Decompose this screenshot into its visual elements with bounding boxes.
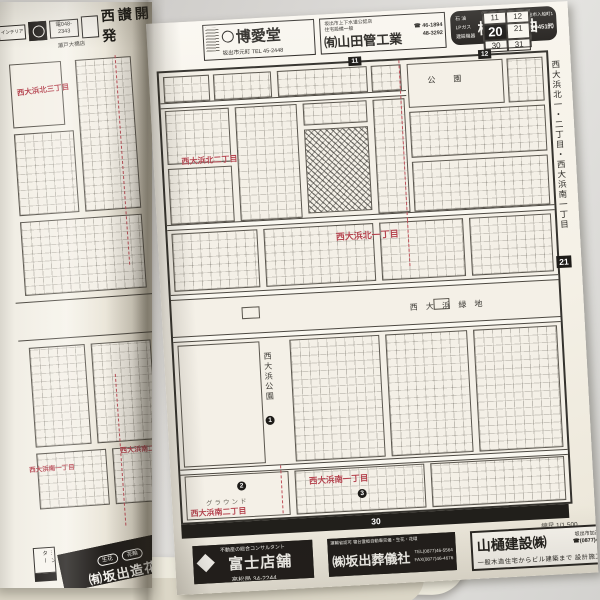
ad-partial-text: …ンター bbox=[40, 550, 57, 573]
ad-fuji-tenpo: 不動産の総合コンサルタント 富士店舗 高松局 34-2244 bbox=[192, 540, 314, 584]
map-block bbox=[14, 130, 80, 216]
map-block bbox=[91, 339, 152, 443]
top-edge-marker-12: 12 bbox=[478, 49, 491, 59]
map-block bbox=[163, 75, 210, 103]
ad-partial-phone-strip bbox=[35, 573, 58, 583]
bottom-edge-marker-30: 30 bbox=[371, 516, 381, 526]
right-edge-marker-21: 21 bbox=[556, 255, 572, 268]
ad-vertical-text-box bbox=[81, 15, 100, 38]
map-block bbox=[409, 105, 547, 158]
map-block bbox=[385, 330, 473, 456]
hakuaido-phone: 坂出市元町 TEL 45-2448 bbox=[222, 46, 283, 57]
grid-cell-31: 31 bbox=[507, 38, 531, 51]
left-page: インテリア 電048-2343 西讃開発 瀬戸大橋店 西大浜北三 bbox=[0, 2, 152, 588]
sougisha-topline: 運輸省認可 寝台霊柩自動車完備・生花・花環 bbox=[330, 534, 452, 547]
brush-logo-icon bbox=[32, 25, 45, 38]
district-label-minami-2: 西大浜南二丁目 bbox=[120, 442, 152, 455]
ad-logo-box bbox=[28, 20, 48, 40]
yamahi-addr: 坂出市加茂町47番 bbox=[574, 528, 598, 537]
map-block bbox=[241, 306, 260, 319]
map-block bbox=[36, 449, 110, 510]
circled-number-1: 1 bbox=[265, 416, 274, 425]
map-block bbox=[371, 64, 402, 92]
photo-of-open-map-book: インテリア 電048-2343 西讃開発 瀬戸大橋店 西大浜北三 bbox=[0, 0, 600, 600]
grid-cell-21: 21 bbox=[507, 22, 531, 39]
map-block bbox=[171, 229, 260, 292]
yokoi-left2: LPガス bbox=[455, 23, 471, 31]
hakuaido-logo-icon bbox=[221, 30, 234, 43]
sougisha-fax: FAX(0877)46-4676 bbox=[414, 555, 453, 562]
map-label-greenbelt: 西 大 浜 緑 地 bbox=[409, 298, 485, 313]
hakuaido-side-smalltext bbox=[205, 27, 219, 52]
map-block bbox=[235, 104, 303, 221]
map-block bbox=[473, 325, 563, 451]
ad-seisan-kaihatsu: 西讃開発 bbox=[100, 2, 152, 46]
map-block bbox=[469, 213, 554, 275]
ad-interior-shop: インテリア bbox=[0, 24, 26, 41]
ad-phone-text: 電048-2343 bbox=[55, 21, 72, 35]
ad-partial-center: …ンター bbox=[33, 547, 57, 574]
ad-interior-label: インテリア bbox=[1, 28, 24, 35]
map-label-setoohashi-shop: 瀬戸大橋店 bbox=[57, 39, 85, 50]
map-block bbox=[430, 456, 566, 507]
ad-sakaide-sougisha: 運輸省認可 寝台霊柩自動車完備・生花・花環 ㈱坂出葬儀社 TEL(0877)46… bbox=[327, 532, 457, 577]
map-label-nishiohama-park: 西大浜公園 bbox=[262, 352, 276, 403]
map-block bbox=[213, 71, 272, 100]
map-block bbox=[506, 57, 544, 103]
yamada-phone2: 48-3292 bbox=[423, 30, 443, 37]
right-page: 博愛堂 坂出市元町 TEL 45-2448 坂出市上下水道公認店 住宅設備一般 … bbox=[146, 1, 598, 595]
hakuaido-name: 博愛堂 bbox=[235, 24, 281, 47]
grid-cell-current-20: 20 bbox=[484, 24, 508, 41]
map-label-park: 公 園 bbox=[427, 73, 467, 86]
map-area: 公 園 西大浜北二丁目 西大浜北一丁目 西 大 浜 緑 地 bbox=[157, 50, 573, 525]
map-block bbox=[303, 100, 368, 125]
map-block bbox=[29, 344, 92, 448]
yamahi-phone: ☎(0877)48-6115 bbox=[573, 536, 598, 544]
yamada-phone1: ☎ 46-1894 bbox=[414, 22, 443, 30]
yamada-name: ㈲山田管工業 bbox=[324, 28, 403, 51]
ad-phone-box: 電048-2343 bbox=[49, 19, 79, 39]
left-page-content: インテリア 電048-2343 西讃開発 瀬戸大橋店 西大浜北三 bbox=[0, 2, 152, 588]
map-block bbox=[289, 335, 385, 462]
park-west-block bbox=[177, 341, 265, 467]
yokoi-left1: 石 油 bbox=[455, 15, 466, 23]
ad-yamahi-kensetsu: 山樋建設㈱ 坂出市加茂町47番 ☎(0877)48-6115 一般木造住宅からビ… bbox=[470, 523, 598, 571]
sougisha-tel: TEL(0877)46-5564 bbox=[414, 547, 453, 554]
page-index-grid: 11 12 20 21 30 31 bbox=[482, 9, 532, 50]
yamahi-name: 山樋建設㈱ bbox=[476, 532, 547, 556]
map-block bbox=[75, 56, 141, 212]
hatched-block bbox=[304, 126, 372, 213]
sougisha-name: ㈱坂出葬儀社 bbox=[332, 548, 411, 571]
ad-hakuaido: 博愛堂 坂出市元町 TEL 45-2448 bbox=[202, 19, 316, 61]
ad-sakaide-zoka: 生花 花輪 ㈲坂出造花 bbox=[57, 530, 152, 588]
map-block bbox=[168, 166, 235, 225]
map-block bbox=[412, 154, 551, 211]
top-edge-marker-11: 11 bbox=[348, 56, 361, 66]
yokoi-left3: 建設機器 bbox=[456, 32, 476, 40]
ad-yamada-kankogyo: 坂出市上下水道公認店 住宅設備一般 ㈲山田管工業 ☎ 46-1894 48-32… bbox=[319, 12, 447, 55]
